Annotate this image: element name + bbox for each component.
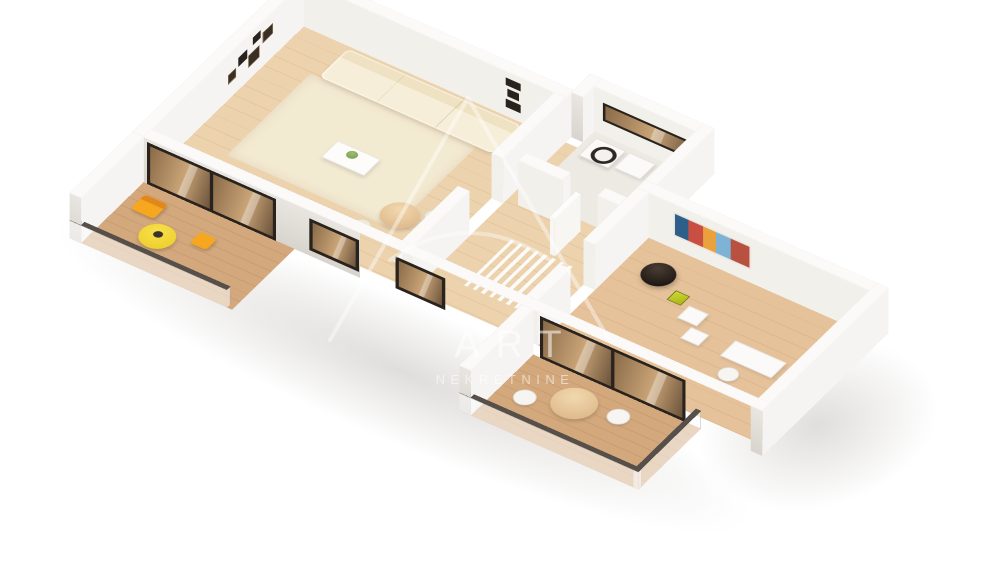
wall-front-face xyxy=(583,240,595,290)
wall-front-face xyxy=(492,153,504,203)
picture-frame xyxy=(238,49,247,67)
picture-frame xyxy=(248,45,259,68)
picture-frame xyxy=(263,23,273,43)
railing-side-face xyxy=(227,286,230,307)
wall-front-face xyxy=(571,92,583,142)
wall-side-face xyxy=(762,403,770,456)
picture-frame xyxy=(228,68,236,85)
floorplan-render: ART NEKRETNINE xyxy=(0,0,1000,563)
